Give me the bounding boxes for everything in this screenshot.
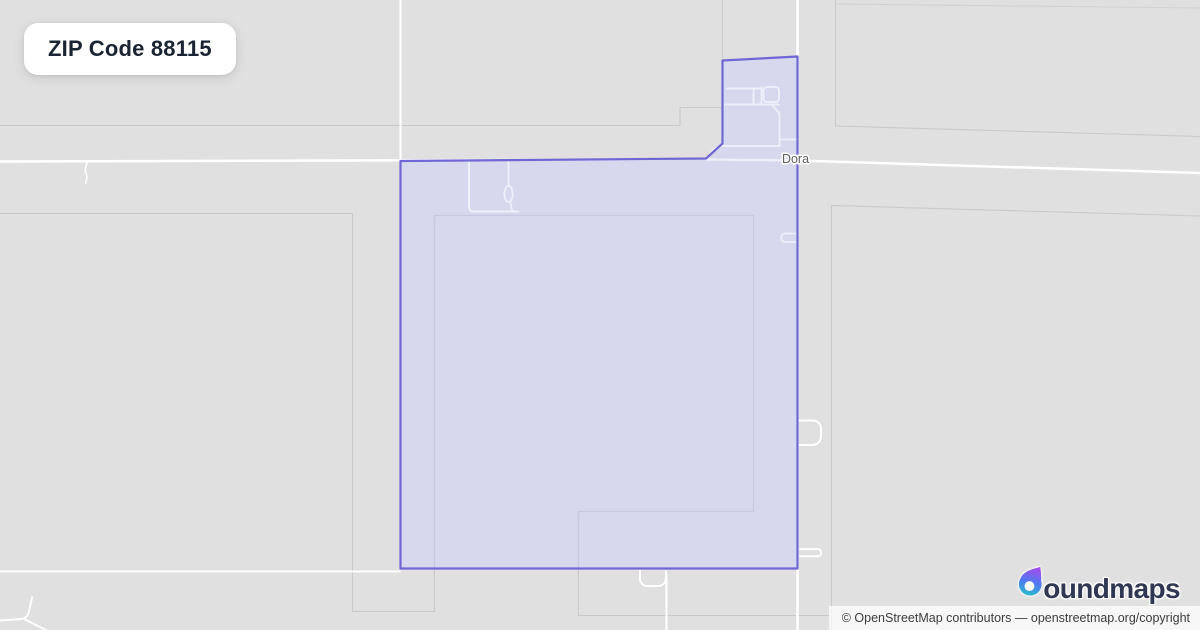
map-canvas: Dora <box>0 0 1200 630</box>
section-line <box>579 568 832 616</box>
place-label-dora: Dora <box>782 152 809 166</box>
section-line <box>836 0 1200 137</box>
section-line <box>0 108 722 126</box>
boundmaps-drop-icon <box>1017 566 1043 599</box>
zip-title-badge: ZIP Code 88115 <box>24 23 236 75</box>
zip-boundary-fill <box>401 57 798 569</box>
road-stub-east <box>800 549 821 556</box>
road-hook <box>640 570 666 586</box>
boundmaps-wordmark: oundmaps <box>1043 575 1180 603</box>
section-line <box>836 4 1200 8</box>
page-title: ZIP Code 88115 <box>48 36 212 62</box>
road-loop-east <box>799 421 821 446</box>
boundmaps-logo: oundmaps <box>1017 566 1180 603</box>
section-line <box>0 214 435 612</box>
osm-attribution-text: © OpenStreetMap contributors — openstree… <box>842 611 1190 625</box>
road-fork <box>0 598 46 630</box>
zip-map-card: { "title_badge": { "label": "ZIP Code 88… <box>0 0 1200 630</box>
road-spur <box>85 162 87 184</box>
osm-attribution: © OpenStreetMap contributors — openstree… <box>829 606 1200 630</box>
